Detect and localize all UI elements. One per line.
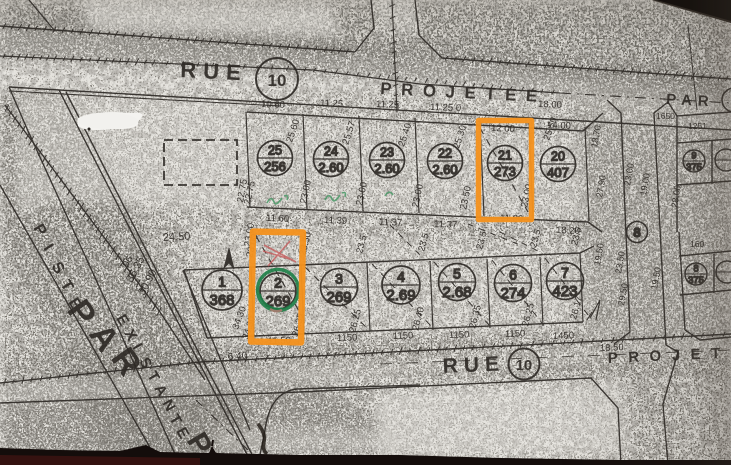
svg-text:256: 256 [264, 159, 286, 174]
svg-text:18.00: 18.00 [538, 99, 562, 111]
svg-text:11.25 0: 11.25 0 [430, 102, 461, 114]
svg-text:21: 21 [498, 149, 512, 163]
svg-text:4: 4 [397, 269, 405, 285]
svg-text:2.68: 2.68 [442, 284, 471, 301]
svg-text:6: 6 [509, 267, 517, 283]
svg-text:RUE: RUE [442, 352, 505, 378]
svg-text:2.69: 2.69 [386, 287, 415, 304]
svg-text:10: 10 [268, 71, 287, 90]
svg-text:11.37: 11.37 [434, 219, 457, 231]
svg-text:5: 5 [453, 266, 461, 282]
svg-text:11.37: 11.37 [379, 217, 402, 229]
svg-text:1150: 1150 [505, 328, 526, 340]
svg-text:11.60: 11.60 [266, 213, 289, 225]
svg-text:25: 25 [268, 144, 282, 158]
svg-text:273: 273 [494, 164, 516, 179]
svg-text:2.60: 2.60 [432, 162, 457, 177]
svg-text:2.60: 2.60 [318, 160, 343, 175]
svg-text:1: 1 [218, 274, 226, 290]
svg-text:10: 10 [516, 358, 532, 374]
svg-text:368: 368 [209, 292, 234, 309]
svg-text:6.40: 6.40 [227, 351, 248, 363]
svg-text:24: 24 [324, 145, 338, 159]
svg-text:11.39: 11.39 [324, 215, 347, 227]
svg-text:RUE: RUE [180, 57, 249, 85]
svg-text:10.60: 10.60 [261, 99, 285, 111]
svg-text:1150: 1150 [449, 329, 470, 341]
svg-text:3: 3 [335, 271, 343, 287]
svg-text:23: 23 [380, 146, 394, 160]
svg-text:2.60: 2.60 [374, 161, 399, 176]
svg-text:274: 274 [500, 285, 525, 302]
svg-text:22: 22 [438, 147, 452, 161]
svg-text:269: 269 [326, 289, 351, 306]
svg-text:1150: 1150 [393, 330, 414, 342]
svg-text:11.25: 11.25 [376, 99, 399, 111]
svg-text:12.00: 12.00 [491, 123, 515, 135]
svg-text:11.25: 11.25 [320, 98, 343, 110]
svg-text:24,50: 24,50 [163, 231, 191, 244]
svg-text:1150: 1150 [337, 332, 358, 344]
svg-text:2: 2 [274, 275, 282, 291]
